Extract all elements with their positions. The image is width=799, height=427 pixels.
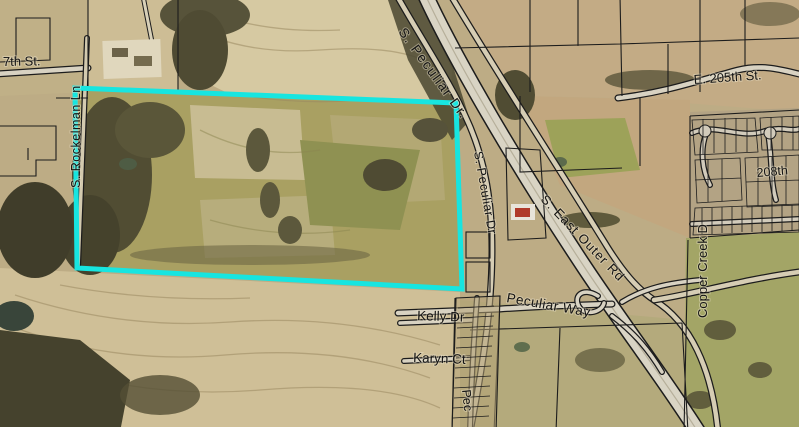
street-label-s-rockelman-ln: S. Rockelman Ln [69, 85, 83, 188]
red-roof-building [511, 204, 535, 220]
street-label-kelly-dr: Kelly Dr [417, 308, 465, 325]
map-canvas[interactable]: 7th St. S. Peculiar Dr. E. 205th St. 208… [0, 0, 799, 427]
street-label-peculiar-partial: Pec [459, 389, 475, 412]
street-label-copper-creek-dr: Copper Creek D [695, 224, 710, 318]
street-label-7th-st: 7th St. [3, 53, 41, 69]
street-label-208th: 208th [756, 163, 788, 180]
aerial-map-view[interactable]: 7th St. S. Peculiar Dr. E. 205th St. 208… [0, 0, 799, 427]
street-label-karyn-ct: Karyn Ct [413, 350, 466, 367]
facility-pad [102, 39, 161, 79]
